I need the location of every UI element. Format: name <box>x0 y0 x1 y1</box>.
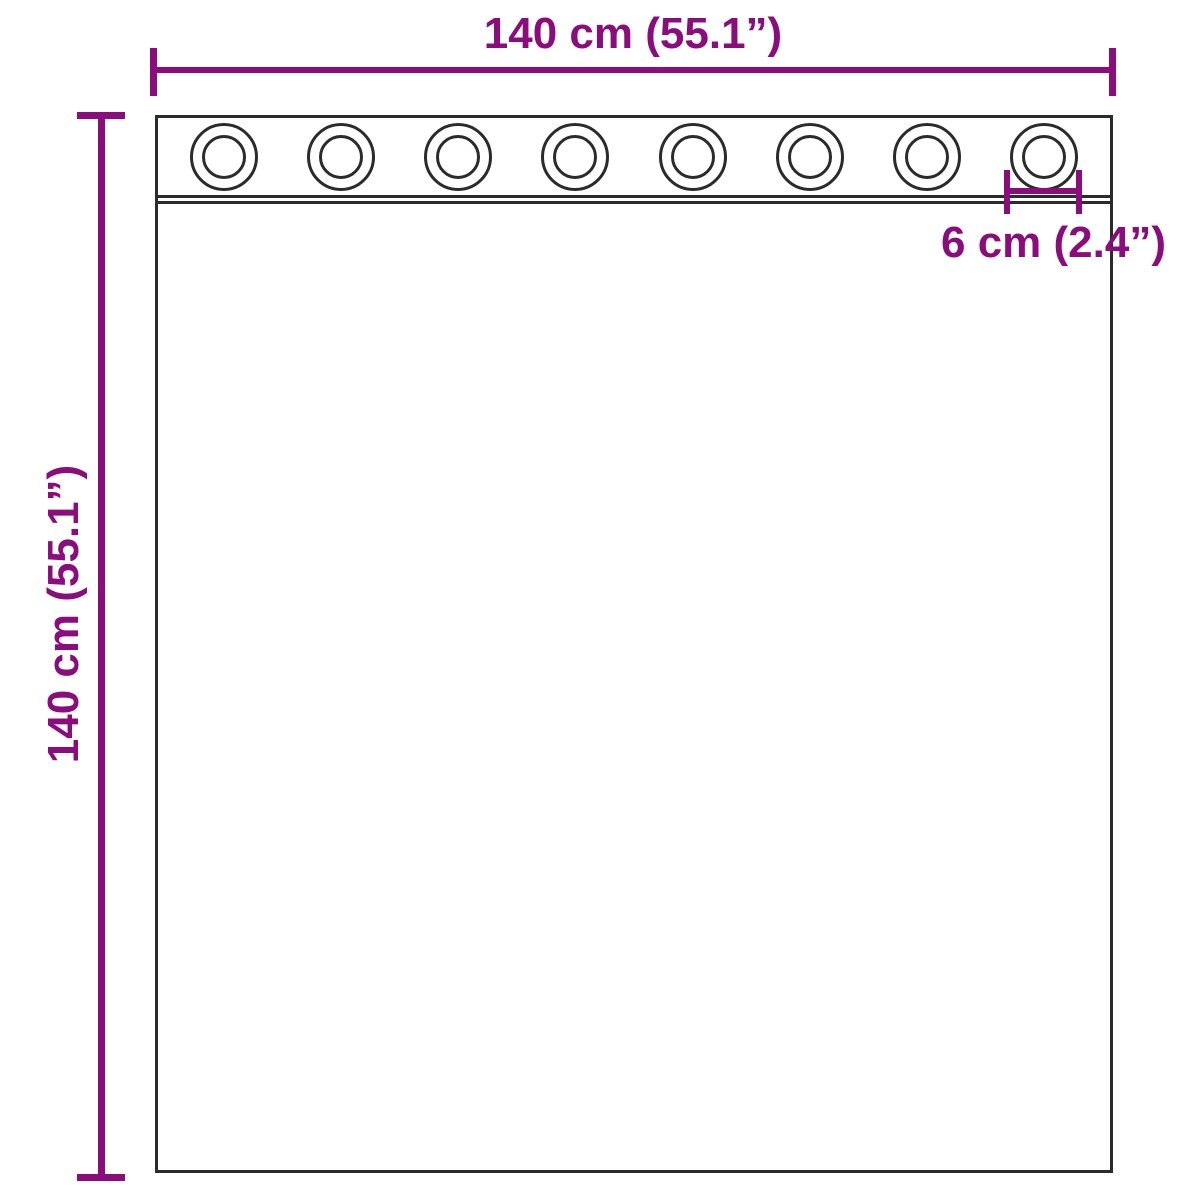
width-dimension-tick-left <box>150 48 157 96</box>
width-dimension-label: 140 cm (55.1”) <box>153 10 1113 58</box>
eyelet <box>659 123 727 191</box>
eyelet-inner-ring <box>905 135 949 179</box>
eyelet-spacing-dimension-tick-right <box>1076 170 1082 214</box>
eyelet <box>893 123 961 191</box>
eyelet <box>424 123 492 191</box>
eyelet <box>190 123 258 191</box>
height-dimension-tick-bottom <box>77 1174 125 1181</box>
eyelet-inner-ring <box>788 135 832 179</box>
eyelet-spacing-dimension-label: 6 cm (2.4”) <box>941 219 1166 267</box>
height-dimension-line <box>98 114 105 1180</box>
header-stitch-line-bottom <box>158 201 1110 204</box>
width-dimension-line <box>153 67 1113 73</box>
eyelet-inner-ring <box>319 135 363 179</box>
height-dimension-label: 140 cm (55.1”) <box>40 454 90 774</box>
eyelet-spacing-dimension-tick-left <box>1004 170 1010 214</box>
eyelet <box>541 123 609 191</box>
width-dimension-tick-right <box>1109 48 1116 96</box>
eyelet-inner-ring <box>436 135 480 179</box>
eyelet-inner-ring <box>671 135 715 179</box>
eyelet-inner-ring <box>1022 135 1066 179</box>
eyelet-spacing-dimension-line <box>1007 188 1079 194</box>
eyelet-inner-ring <box>202 135 246 179</box>
eyelet <box>307 123 375 191</box>
curtain-dimension-diagram: 140 cm (55.1”) 140 cm (55.1”) 6 cm (2.4”… <box>0 0 1200 1200</box>
eyelet-inner-ring <box>553 135 597 179</box>
curtain-panel <box>155 115 1113 1173</box>
eyelet <box>776 123 844 191</box>
header-stitch-line-top <box>158 195 1110 198</box>
eyelet <box>1010 123 1078 191</box>
height-dimension-tick-top <box>77 112 125 119</box>
